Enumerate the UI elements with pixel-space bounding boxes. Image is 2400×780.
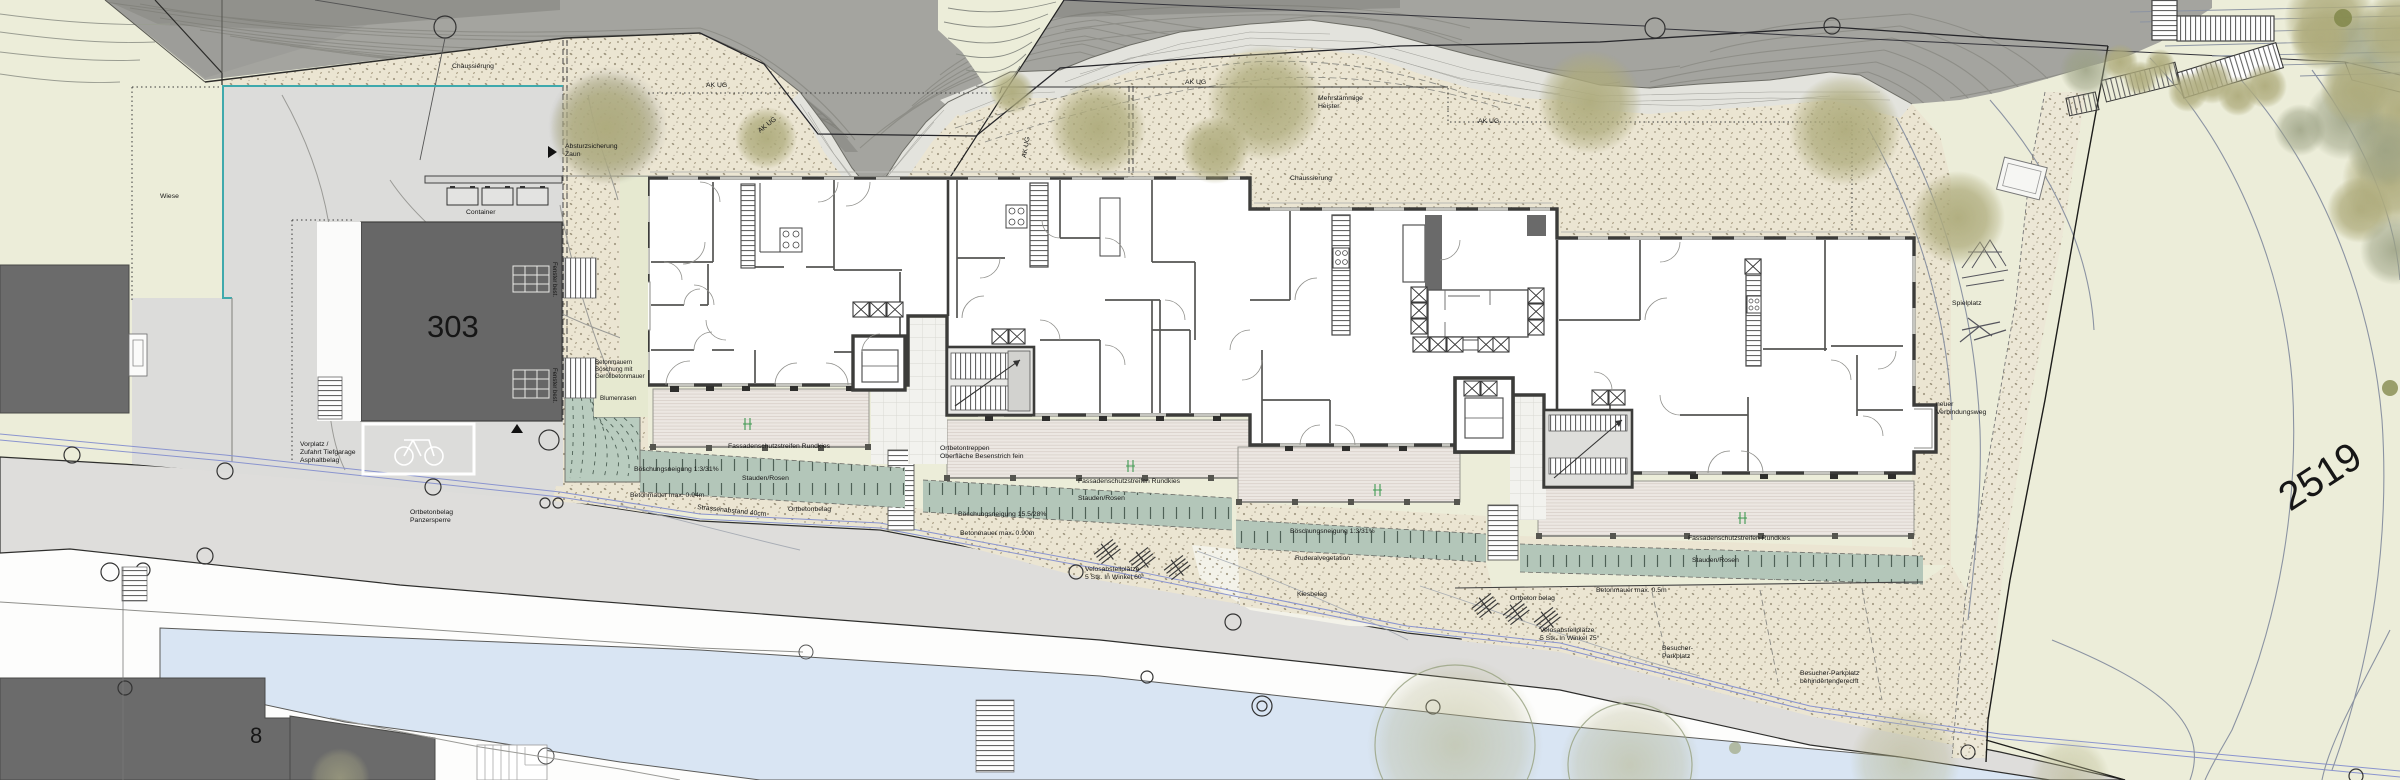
svg-text:303: 303 xyxy=(427,309,479,344)
svg-text:AK UG: AK UG xyxy=(1185,79,1206,86)
svg-text:Fassadenschutzstreifen Rundkie: Fassadenschutzstreifen Rundkies xyxy=(1078,478,1181,485)
svg-text:Chaussierung: Chaussierung xyxy=(1290,175,1332,182)
svg-text:Stauden/Rosen: Stauden/Rosen xyxy=(742,475,789,482)
svg-text:AK UG: AK UG xyxy=(706,82,727,89)
svg-text:Oberfläche Besenstrich fein: Oberfläche Besenstrich fein xyxy=(940,453,1024,460)
svg-text:Velosabstellplätze: Velosabstellplätze xyxy=(1085,566,1140,573)
svg-text:Absturzsicherung: Absturzsicherung xyxy=(565,143,618,150)
svg-text:Ruderalvegetation: Ruderalvegetation xyxy=(1295,555,1350,562)
svg-text:Panzersperre: Panzersperre xyxy=(410,517,451,524)
svg-text:Böschungsneigung 15.5/28%: Böschungsneigung 15.5/28% xyxy=(958,511,1046,518)
svg-text:Zaun: Zaun xyxy=(565,151,581,158)
svg-text:Betonmauern: Betonmauern xyxy=(595,359,633,366)
svg-text:Spielplatz: Spielplatz xyxy=(1952,300,1982,307)
svg-text:Böschung mit: Böschung mit xyxy=(595,366,633,373)
svg-text:Ortbetontreppen: Ortbetontreppen xyxy=(940,445,990,452)
svg-text:behindertengerecht: behindertengerecht xyxy=(1800,678,1859,685)
svg-text:AK UG: AK UG xyxy=(1478,118,1499,125)
svg-text:Chaussierung: Chaussierung xyxy=(452,63,494,70)
svg-text:Vorplatz /: Vorplatz / xyxy=(300,441,328,448)
svg-text:neuer: neuer xyxy=(1936,401,1954,408)
svg-text:Fassadenschutzstreifen Rundkie: Fassadenschutzstreifen Rundkies xyxy=(728,443,831,450)
svg-text:Stauden/Rosen: Stauden/Rosen xyxy=(1078,495,1125,502)
svg-text:Ortbetonbelag: Ortbetonbelag xyxy=(410,509,453,516)
svg-text:Betonmauer max. 0.90m: Betonmauer max. 0.90m xyxy=(960,530,1035,537)
svg-text:Zufahrt Tiefgarage: Zufahrt Tiefgarage xyxy=(300,449,356,456)
svg-text:Container: Container xyxy=(466,209,496,216)
svg-text:Wiese: Wiese xyxy=(160,193,179,200)
svg-text:Stauden/Rosen: Stauden/Rosen xyxy=(1692,557,1739,564)
svg-text:Besucher-Parkplatz: Besucher-Parkplatz xyxy=(1800,670,1860,677)
svg-text:8: 8 xyxy=(250,723,262,748)
svg-text:5 Stk. In Winkel 60°: 5 Stk. In Winkel 60° xyxy=(1085,573,1145,581)
svg-text:Ortbeton belag: Ortbeton belag xyxy=(1510,595,1555,602)
svg-text:Besucher-: Besucher- xyxy=(1662,645,1693,652)
svg-text:Geröllbetonmauer: Geröllbetonmauer xyxy=(595,373,645,380)
svg-text:Asphaltbelag: Asphaltbelag xyxy=(300,457,340,464)
svg-text:Kiesbelag: Kiesbelag xyxy=(1297,591,1327,598)
svg-text:Blumenrasen: Blumenrasen xyxy=(600,395,637,402)
svg-text:Betonmauer max. 0.94m: Betonmauer max. 0.94m xyxy=(630,492,705,499)
svg-text:Heister: Heister xyxy=(1318,103,1340,110)
svg-text:Betonmauer max. 0.5m: Betonmauer max. 0.5m xyxy=(1596,587,1667,594)
svg-text:Mehrstämmige: Mehrstämmige xyxy=(1318,95,1363,102)
svg-text:Ortbetonbelag: Ortbetonbelag xyxy=(788,506,831,513)
svg-text:5 Stk. In Winkel 75°: 5 Stk. In Winkel 75° xyxy=(1540,634,1600,642)
svg-text:Fenster best.: Fenster best. xyxy=(551,262,557,297)
svg-text:Fenster best.: Fenster best. xyxy=(551,368,557,403)
svg-text:Velosabstellplätze: Velosabstellplätze xyxy=(1540,627,1595,634)
svg-text:Fassadenschutzstreifen Rundkie: Fassadenschutzstreifen Rundkies xyxy=(1688,535,1791,542)
svg-text:Parkplatz: Parkplatz xyxy=(1662,653,1691,660)
svg-text:Böschungsneigung 1:3/31%: Böschungsneigung 1:3/31% xyxy=(634,466,719,473)
svg-text:Verbindungsweg: Verbindungsweg xyxy=(1936,409,1986,416)
svg-text:Böschungsneigung 1:3/31%: Böschungsneigung 1:3/31% xyxy=(1290,528,1375,535)
